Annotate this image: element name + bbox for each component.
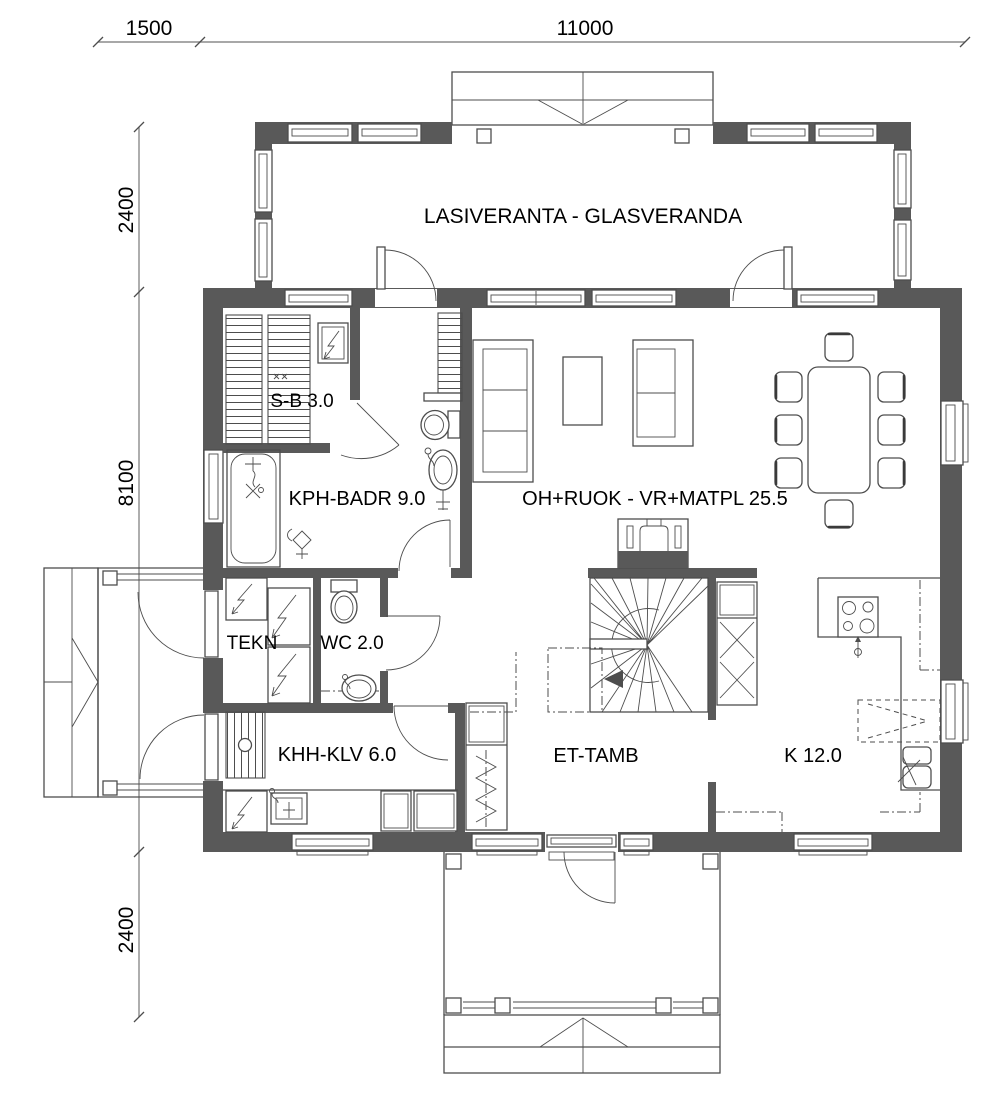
- label-veranda: LASIVERANTA - GLASVERANDA: [424, 205, 742, 228]
- dining-set: [775, 333, 905, 528]
- dining-table: [808, 367, 870, 493]
- label-living-dining: OH+RUOK - VR+MATPL 25.5: [522, 488, 788, 510]
- room-utility: [223, 712, 458, 832]
- staircase: [548, 578, 708, 712]
- floor-plan-drawing: 1500 11000 2400 8100 2400: [0, 0, 1000, 1101]
- sauna-bench: [268, 315, 310, 444]
- stair-handrail: [590, 639, 647, 649]
- label-kitchen: K 12.0: [784, 745, 842, 767]
- utility-sink-symbol: [270, 789, 308, 825]
- dim-left-top: 2400: [115, 187, 138, 234]
- kitchen-sink-symbol: [898, 747, 931, 788]
- appliance: [414, 791, 457, 831]
- bottom-porch: [444, 852, 720, 1073]
- sofa-small: [633, 340, 693, 446]
- dim-top-main: 11000: [557, 17, 614, 40]
- washer-symbol: [226, 791, 267, 832]
- coffee-table: [563, 357, 602, 425]
- drying-cabinet: [226, 712, 265, 778]
- sauna-stove-symbol: [318, 323, 348, 363]
- floor-plan-canvas: 1500 11000 2400 8100 2400: [0, 0, 1000, 1101]
- veranda-post: [675, 129, 689, 143]
- label-sauna: S-B 3.0: [270, 391, 333, 412]
- left-porch: [44, 568, 203, 797]
- dishwasher-dashed: [858, 700, 940, 742]
- toilet-symbol: [331, 580, 357, 623]
- veranda-window: [288, 124, 877, 142]
- tall-cabinet: [424, 313, 462, 401]
- dim-left-bottom: 2400: [115, 907, 138, 954]
- sauna-bench: [226, 315, 262, 444]
- dim-left-main: 8100: [115, 460, 138, 507]
- label-utility: KHH-KLV 6.0: [278, 744, 397, 766]
- wardrobe: [466, 703, 507, 830]
- living-room-furniture: [473, 340, 693, 482]
- appliance: [381, 791, 411, 831]
- washbasin-symbol: [425, 448, 457, 510]
- room-entry: [466, 652, 516, 830]
- label-wc: WC 2.0: [320, 633, 383, 654]
- washbasin-symbol: [342, 675, 376, 702]
- floor-drain-symbol: [288, 529, 312, 559]
- stair-direction-arrow: [604, 670, 623, 688]
- sofa-large: [473, 340, 533, 482]
- dim-top-left: 1500: [126, 17, 173, 40]
- fireplace-symbol: [618, 519, 688, 568]
- label-entry: ET-TAMB: [553, 745, 638, 767]
- top-porch-steps: [452, 72, 713, 125]
- toilet-symbol: [421, 411, 460, 440]
- bathtub-symbol: [227, 450, 280, 567]
- room-sauna: [226, 315, 348, 444]
- label-technical: TEKN: [227, 633, 278, 654]
- cooktop-symbol: [838, 597, 878, 658]
- label-bathroom: KPH-BADR 9.0: [289, 488, 426, 510]
- left-wall-openings: [138, 450, 223, 781]
- veranda-post: [477, 129, 491, 143]
- stair-closet: [717, 582, 757, 705]
